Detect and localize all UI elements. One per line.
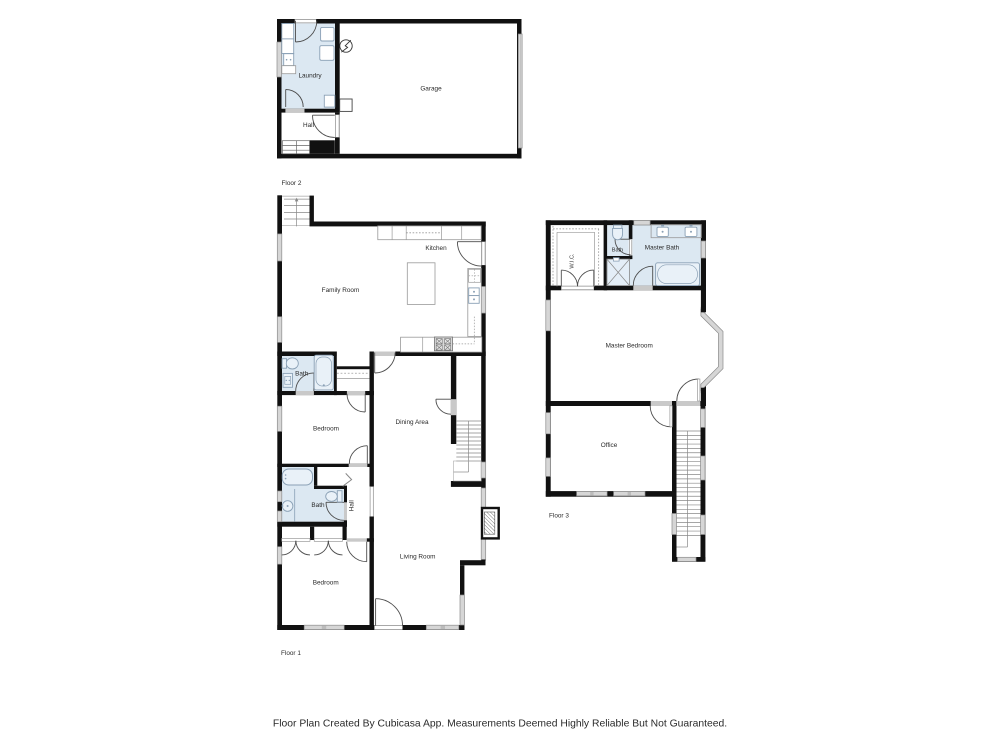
svg-text:Floor 2: Floor 2 (282, 180, 302, 187)
svg-text:Hall: Hall (349, 500, 356, 511)
svg-text:Hall: Hall (303, 122, 314, 129)
svg-text:Bedroom: Bedroom (313, 425, 339, 432)
svg-text:Bath: Bath (612, 248, 624, 254)
svg-text:Master Bedroom: Master Bedroom (606, 343, 653, 350)
svg-text:Dining Area: Dining Area (395, 419, 428, 426)
svg-text:Bath: Bath (311, 502, 325, 509)
svg-text:Kitchen: Kitchen (425, 245, 447, 252)
svg-text:Floor Plan Created By Cubicasa: Floor Plan Created By Cubicasa App. Meas… (273, 719, 727, 730)
svg-text:Master Bath: Master Bath (645, 245, 680, 252)
svg-text:Bedroom: Bedroom (313, 580, 339, 587)
svg-text:Floor 3: Floor 3 (549, 512, 569, 519)
svg-text:Bath: Bath (295, 371, 309, 378)
svg-text:Family Room: Family Room (322, 287, 360, 294)
svg-text:Living Room: Living Room (400, 554, 436, 561)
svg-text:Garage: Garage (420, 86, 442, 93)
svg-text:Office: Office (601, 442, 618, 449)
svg-text:Floor 1: Floor 1 (281, 650, 301, 657)
svg-text:Laundry: Laundry (298, 73, 322, 80)
svg-text:W.I.C.: W.I.C. (570, 253, 576, 269)
